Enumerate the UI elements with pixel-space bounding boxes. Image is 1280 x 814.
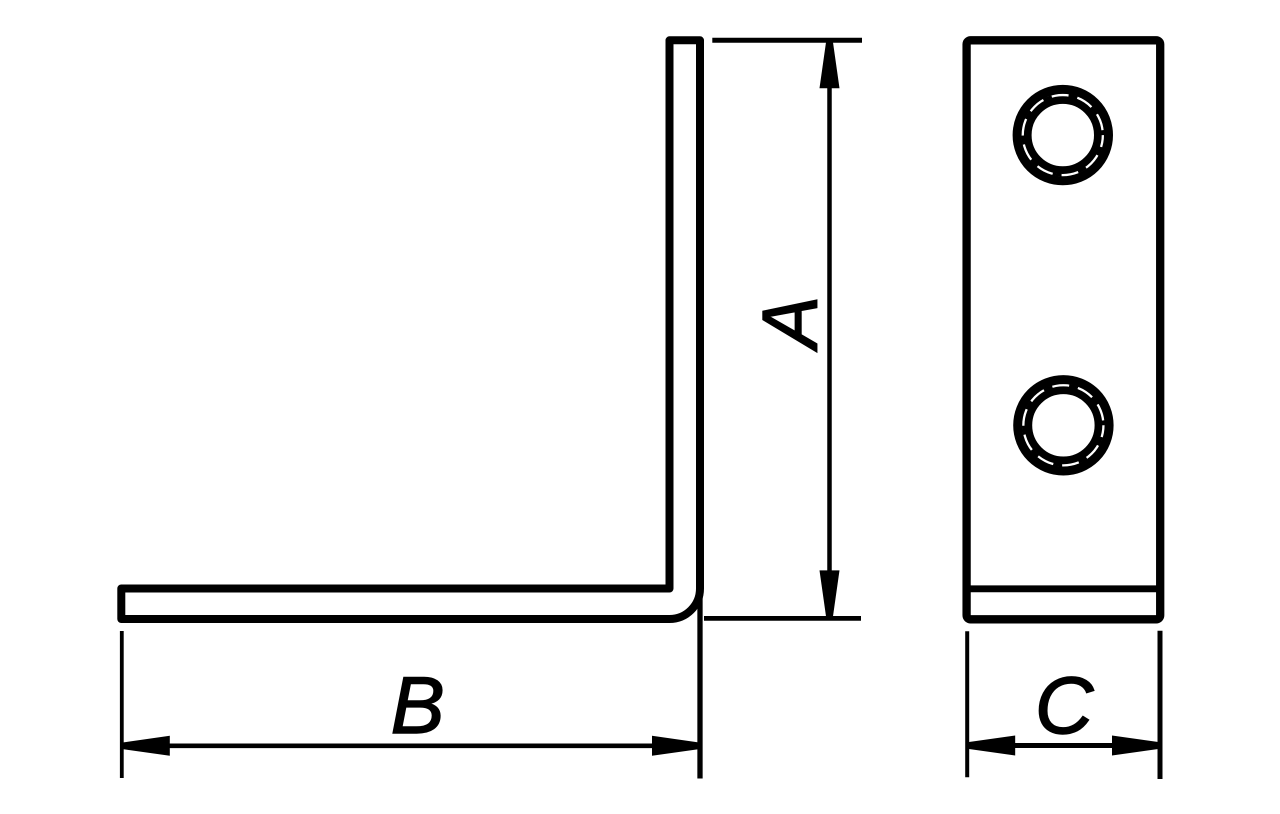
svg-text:B: B: [391, 661, 445, 751]
svg-text:C: C: [1035, 661, 1094, 751]
svg-text:A: A: [746, 296, 834, 352]
